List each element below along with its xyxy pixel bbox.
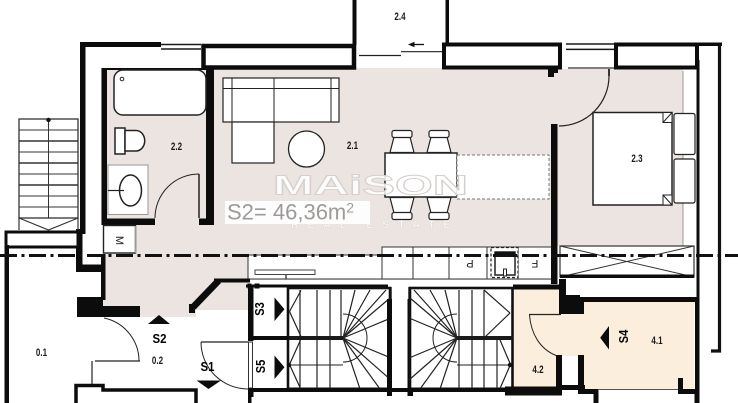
svg-text:4.1: 4.1 bbox=[651, 335, 663, 348]
svg-text:P: P bbox=[466, 257, 473, 269]
svg-text:F: F bbox=[531, 257, 538, 269]
svg-text:0.1: 0.1 bbox=[36, 347, 48, 360]
svg-text:2.3: 2.3 bbox=[631, 153, 642, 166]
svg-text:2.4: 2.4 bbox=[394, 11, 406, 24]
svg-text:2.2: 2.2 bbox=[171, 141, 182, 154]
svg-text:S1: S1 bbox=[201, 359, 215, 374]
svg-text:0.2: 0.2 bbox=[152, 355, 163, 368]
svg-text:MAiSON: MAiSON bbox=[273, 170, 468, 201]
svg-text:M: M bbox=[113, 236, 125, 245]
svg-text:S2: S2 bbox=[153, 331, 167, 346]
svg-text:2.1: 2.1 bbox=[347, 140, 359, 153]
svg-text:S5: S5 bbox=[253, 359, 268, 373]
svg-text:4.2: 4.2 bbox=[532, 364, 543, 377]
svg-text:S2= 46,36m2: S2= 46,36m2 bbox=[227, 200, 354, 225]
svg-text:S4: S4 bbox=[616, 329, 631, 343]
svg-text:S3: S3 bbox=[252, 302, 267, 316]
